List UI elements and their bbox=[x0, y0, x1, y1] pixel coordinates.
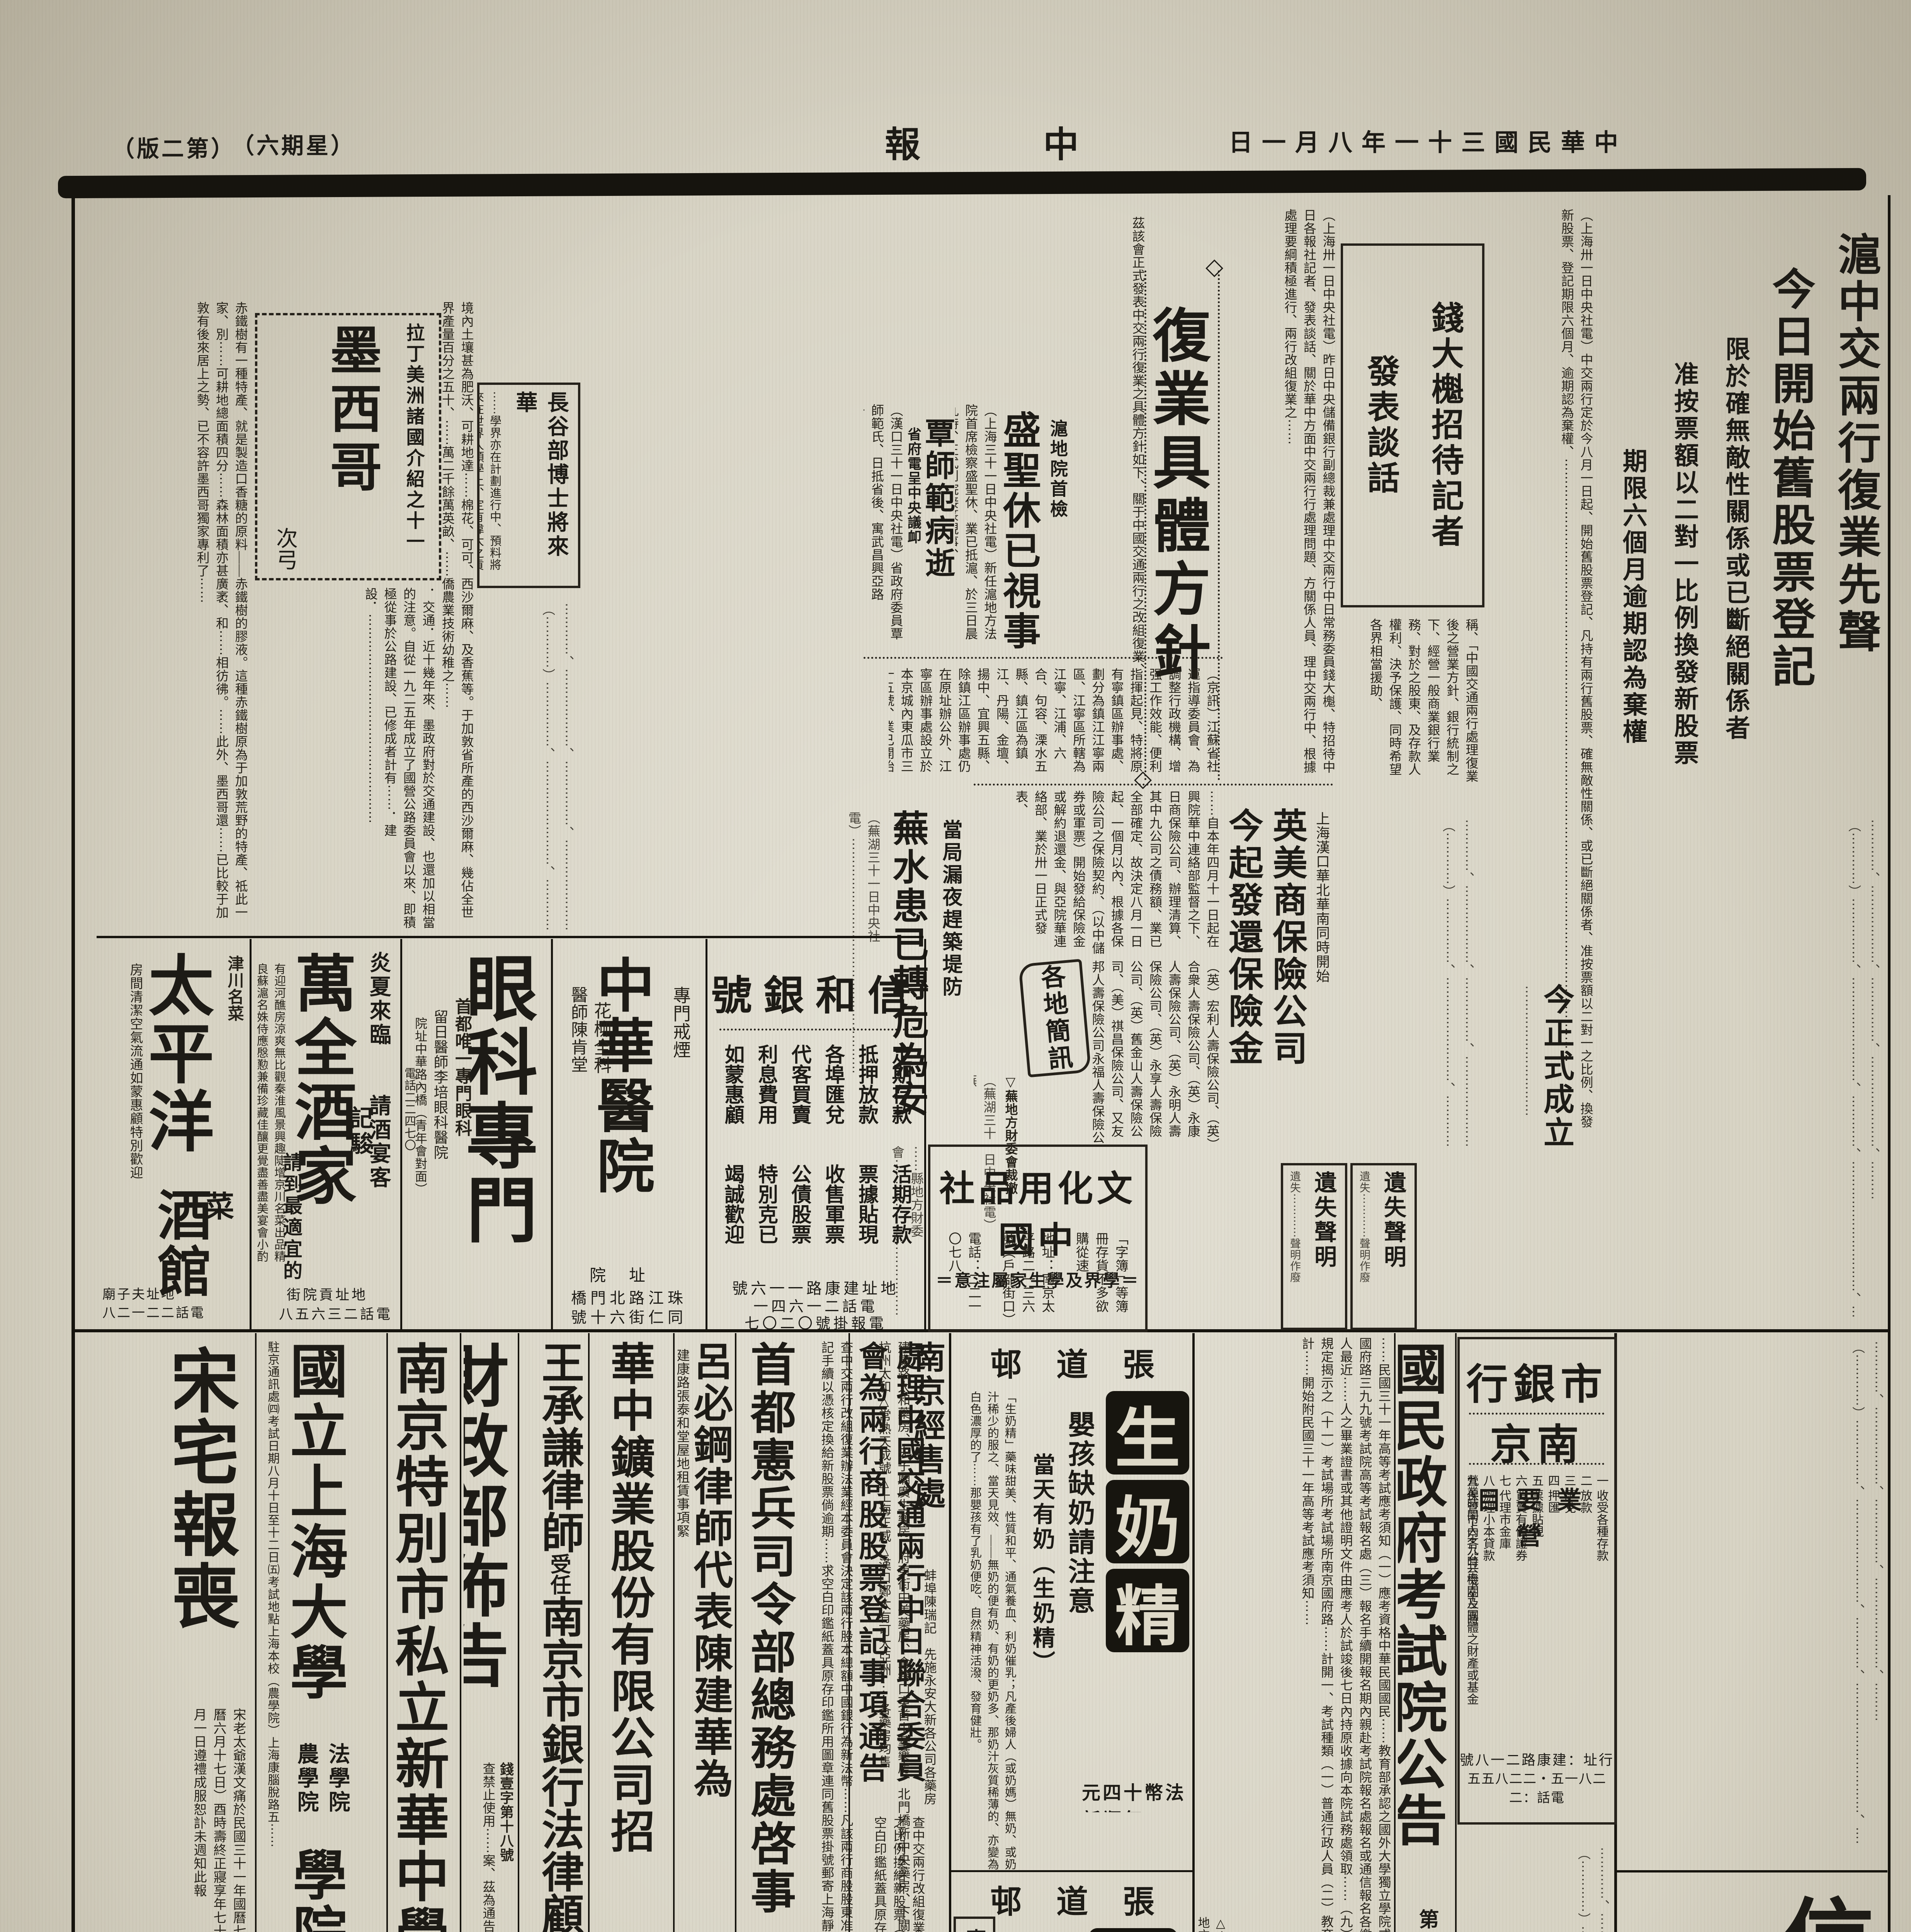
lead-subhead-1: 限於確無敵性關係或已斷絕關係者 bbox=[1711, 336, 1753, 838]
lost-notice-body-2: 遺失⋯⋯⋯⋯聲明作廢 bbox=[1286, 1171, 1302, 1322]
wenhua-line-2: 地址：南京太平路二一三六號（戶部街口） bbox=[998, 1232, 1057, 1321]
wang-t3: 法律顧問 bbox=[535, 1808, 582, 1932]
shengnai-price: 元四十幣法新瓶每 bbox=[1082, 1777, 1190, 1812]
univ-title-2: 學院招收新生 bbox=[288, 1847, 354, 1932]
zhhosp-spec-1: 專門戒煙 bbox=[667, 986, 694, 1141]
caizheng-body: 查禁止使用⋯⋯案、茲為通告週知、此佈。各區域、並應一律禁止攜帶舊幣、俟⋯⋯中華民… bbox=[464, 1762, 497, 1932]
masthead-date: 日一月八年一十三國民華中 bbox=[1229, 123, 1673, 165]
hasebe-title: 長谷部博士將來華 bbox=[509, 391, 572, 580]
bank-items: 一 收受各種存款二 放款三 匯兌四 押匯五 票據貼現六 買賣有價證券七 代理市金… bbox=[1464, 1475, 1610, 1737]
wq-kicker-1: 炎夏來臨 bbox=[363, 951, 394, 1079]
mexico-byline: 次弓 bbox=[270, 527, 301, 570]
wq-side: 記駿 bbox=[343, 1106, 376, 1175]
list-item: 四 押匯 bbox=[1545, 1475, 1560, 1733]
list-item: 定期存款 bbox=[885, 1044, 914, 1145]
tpy-side: 津川名菜 bbox=[222, 955, 246, 1110]
filler-left-mid: ⋯⋯⋯⋯、⋯⋯⋯⋯⋯⋯、⋯⋯⋯⋯⋯、⋯⋯⋯⋯⋯⋯⋯、⋯⋯⋯（⋯⋯⋯⋯）⋯⋯⋯⋯⋯… bbox=[477, 603, 576, 931]
lead-headline-line1: 滬中交兩行復業先聲 bbox=[1823, 232, 1887, 707]
fuye-diamond-top: ◇ bbox=[1205, 253, 1236, 284]
xintai-title: 信泰錢莊 bbox=[1785, 1893, 1885, 1932]
list-item: 收售軍票 bbox=[818, 1164, 847, 1264]
filler-mid-right: ⋯⋯⋯⋯、⋯⋯⋯⋯⋯⋯、⋯⋯⋯⋯⋯、⋯⋯⋯⋯⋯⋯⋯、⋯⋯⋯（⋯⋯⋯⋯）⋯⋯⋯⋯⋯… bbox=[1348, 819, 1476, 1148]
lv-title-1: 呂必鋼律師代表陳建華為 bbox=[688, 1341, 738, 1920]
edition-label: （版二第） bbox=[112, 131, 251, 169]
hasebe-box: 長谷部博士將來華 ⋯⋯學界亦在計劃進行中、預料將來在世界人類學上、定有偉大之貢獻… bbox=[477, 383, 580, 588]
wang-t2: 南京市銀行 bbox=[535, 1595, 582, 1808]
lead-subhead-2: 准按票額以二對一比例換發新股票 bbox=[1659, 361, 1702, 864]
bot-sep-l bbox=[1455, 1333, 1457, 1932]
nanjing-bank-ad: 行銀市京南 目要業營 一 收受各種存款二 放款三 匯兌四 押匯五 票據貼現六 買… bbox=[1457, 1337, 1617, 1825]
qian-interview-box: 錢大櫆招待記者 發表談話 bbox=[1341, 243, 1484, 607]
taipingyang-ad: 津川名菜 太平洋 酒館 菜 房間清潔空氣流通如蒙惠顧特別歡迎 廟子夫址地 八二一… bbox=[99, 940, 249, 1329]
zhonghua-hospital-ad: 專門戒煙 中華醫院 花柳全科 醫師陳肯堂 院址 橋門北路江珠 號十六街仁同 bbox=[553, 940, 705, 1329]
xinhe-services-row2: 活期存款票據貼現收售軍票公債股票特別克已竭誠歡迎 bbox=[716, 1164, 916, 1272]
xinhe-title: 號銀和信 bbox=[708, 963, 923, 1022]
tan-body: （漢口三十一日中央社電）省政府委員覃師範氏、日抵省後、寓武昌興亞路一⋯⋯⋯⋯ bbox=[864, 404, 904, 651]
gedi-cartouche: 各地簡訊 bbox=[1018, 959, 1092, 1077]
divider-dotted-1 bbox=[864, 657, 1223, 659]
insurance-company-list: （英）宏利人壽保險公司、（英）合衆人壽保險公司、（英）永康人壽保險公司、（英）永… bbox=[1086, 960, 1221, 1150]
wenhua-line-3: 電話：二二一〇七八 bbox=[944, 1232, 983, 1321]
tpy-tel: 八二一二二話電 bbox=[102, 1302, 205, 1321]
list-item: 三 匯兌 bbox=[1562, 1475, 1576, 1733]
ads-band-rule bbox=[97, 936, 923, 938]
list-item: 如蒙惠顧 bbox=[718, 1044, 747, 1145]
shengnai-char-1: 生 bbox=[1106, 1391, 1189, 1475]
list-item: 六 買賣有價證券 bbox=[1513, 1475, 1527, 1733]
xinhe-ad: 號銀和信 定期存款抵押放款各埠匯兌代客買賣利息費用如蒙惠顧 活期存款票據貼現收售… bbox=[708, 940, 923, 1329]
ads-sep-3 bbox=[551, 939, 553, 1329]
filler-below-bank: ⋯⋯⋯⋯、⋯⋯⋯⋯⋯⋯、⋯⋯⋯⋯⋯、⋯⋯⋯⋯⋯⋯⋯、⋯⋯⋯（⋯⋯⋯⋯）⋯⋯⋯⋯⋯… bbox=[1460, 1847, 1611, 1932]
bot-sep-k bbox=[1394, 1333, 1396, 1932]
caizheng-title: 財政部佈告 bbox=[464, 1341, 518, 1747]
mexico-title: 墨西哥 bbox=[313, 323, 388, 570]
ads-sep-1 bbox=[250, 939, 252, 1329]
chuli-body: 查中交兩行改組復業辦法業經本委員會決定該兩行股本總額中國銀行為新法幣⋯⋯凡該兩行… bbox=[808, 1341, 855, 1932]
bank-phones: 五五八二二・五一八二二：話電 bbox=[1460, 1768, 1614, 1806]
zhhosp-addr-2: 號十六街仁同 bbox=[553, 1305, 705, 1327]
univ-pair-law: 法學院 bbox=[322, 1743, 352, 1835]
tan-title: 覃師範病逝 bbox=[924, 417, 959, 618]
list-item: 活期存款 bbox=[885, 1164, 914, 1264]
wang-s: 受任 bbox=[547, 1553, 570, 1595]
caizheng-no: 錢壹字第十八號 bbox=[498, 1762, 516, 1932]
dist-extra: 蚌埠陳瑞記 先施永安大新各公司各藥房 bbox=[915, 1569, 938, 1932]
lost-notice-body: 遺失⋯⋯⋯⋯聲明作廢 bbox=[1356, 1171, 1372, 1322]
list-item: 特別克已 bbox=[751, 1164, 780, 1264]
mexico-body-1: 境內土壤甚為肥沃、可耕地達⋯⋯棉花、可可、西沙爾麻、及香蕉等。于加敦省所產的西沙… bbox=[439, 301, 475, 927]
qutan-char-1: 去 bbox=[1089, 1928, 1177, 1932]
paper-title-char-left: 報 bbox=[885, 116, 931, 166]
wushui-kicker: 當局漏夜趕築堤防 bbox=[937, 819, 965, 1059]
sheng-title: 盛聖休已視事 bbox=[1000, 410, 1046, 681]
wang-t1: 王承謙律師 bbox=[535, 1341, 582, 1553]
huazhong-title-1: 華中鑛業股份有限公司招 bbox=[603, 1341, 661, 1920]
filler-xintai-top: ⋯⋯⋯⋯、⋯⋯⋯⋯⋯⋯、⋯⋯⋯⋯⋯、⋯⋯⋯⋯⋯⋯⋯、⋯⋯⋯（⋯⋯⋯⋯）⋯⋯⋯⋯⋯… bbox=[1623, 1341, 1885, 1843]
song-title: 宋宅報喪 bbox=[175, 1345, 248, 1692]
qutan-brand: 邨道張 bbox=[989, 1876, 1190, 1918]
bot-sep-b bbox=[386, 1333, 388, 1932]
list-item: 各埠匯兌 bbox=[818, 1044, 847, 1145]
list-item: 五 票據貼現 bbox=[1529, 1475, 1544, 1733]
qian-body: （上海卅一日中央社電）昨日中央儲備銀行副總裁兼處理中交兩行中日常務委員錢大櫆、特… bbox=[1231, 209, 1337, 784]
jiangning-body: （京訊）江蘇省社運指導委員會、為調整行政機構、增强工作效能、便利指揮起見、特將原… bbox=[889, 668, 1221, 784]
shengnai-char-3: 精 bbox=[1106, 1569, 1189, 1652]
list-item: 竭誠歡迎 bbox=[718, 1164, 747, 1264]
wenhua-ad: 社品用化文國中 ＝意注屬家生學及界學＝ 「字簿」等簿冊存貨不多欲購從速 地址：南… bbox=[928, 1145, 1148, 1332]
wq-body: 有迎河醮房涼爽無比觀秦淮風景興趣陡增京川名菜出品精良蘇滬名姝侍應慇懃兼備珍藏佳釀… bbox=[253, 963, 287, 1272]
list-item: 代客買賣 bbox=[785, 1044, 814, 1145]
list-item: 八 辦理小本貸款 bbox=[1481, 1475, 1495, 1733]
list-item: 一 收受各種存款 bbox=[1594, 1475, 1608, 1733]
qian-body-2: 稱、「中國交通兩行處理復業後之營業方針、銀行統制之下、經營一般商業銀行業務、對於… bbox=[1341, 618, 1480, 784]
shengnai-char-2: 奶 bbox=[1106, 1480, 1189, 1563]
xintai-top-rule bbox=[1617, 1870, 1887, 1872]
eye-line1: 首都唯一專門眼科 bbox=[449, 998, 474, 1268]
list-item: 利息費用 bbox=[751, 1044, 780, 1145]
xinhua-title: 南京特別市私立新華中學招生 bbox=[394, 1341, 456, 1932]
frame-right bbox=[1888, 195, 1891, 1932]
list-item: 二 放款 bbox=[1578, 1475, 1592, 1733]
kaoshi-title: 國民政府考試院公告 bbox=[1398, 1341, 1454, 1889]
zhhosp-addr-label: 院址 bbox=[553, 1262, 705, 1286]
univ-pair: 法學院 農學院 bbox=[291, 1743, 352, 1835]
wang-announcement: 王承謙律師受任南京市銀行法律顧問 bbox=[522, 1341, 587, 1932]
qutan-zhuanzhi-label: 專治 bbox=[956, 1919, 993, 1932]
list-item: 七 代理市金庫 bbox=[1497, 1475, 1511, 1733]
chengli-body: ⋯⋯⋯⋯⋯⋯⋯⋯⋯⋯ bbox=[1509, 985, 1536, 1206]
list-item: 票據貼現 bbox=[852, 1164, 881, 1264]
shengnai-kicker-2: 當天有奶（生奶精） bbox=[1023, 1453, 1058, 1801]
ads-sep-2 bbox=[400, 939, 402, 1329]
ads-sep-4 bbox=[706, 939, 707, 1329]
lead-subhead-3: 期限六個月逾期認為棄權 bbox=[1608, 448, 1651, 827]
ads-sep-5 bbox=[924, 939, 926, 1329]
eye-line4: 電話二二四七〇 bbox=[403, 1067, 418, 1299]
lost-notice-title: 遺失聲明 bbox=[1377, 1171, 1409, 1322]
tpy-title-3: 菜 bbox=[195, 1191, 238, 1237]
tan-kicker: 省府電呈中央議卹 bbox=[906, 427, 923, 601]
song-body: 宋老太爺漢文痛於民國三十一年國曆七月廿九日（農曆六月十七日）酉時壽終正寢享年七十… bbox=[171, 1708, 248, 1932]
shengnai-body: 「生奶精」藥味甜美、性質和平、通氣養血、利奶催乳；凡產後婦人（或奶媽）無奶、或奶… bbox=[954, 1391, 1018, 1874]
wq-addr: 街院貢址地 bbox=[287, 1284, 368, 1304]
bot-sep-d bbox=[518, 1333, 519, 1932]
mexico-box: 拉丁美洲諸國介紹之十一 墨西哥 次弓 bbox=[255, 313, 441, 580]
insurance-title-1: 英美商保險公司 bbox=[1268, 808, 1311, 1101]
chengli-title: 今正式成立 bbox=[1540, 983, 1578, 1207]
sheng-body: （上海三十一日中央社電）新任滬地方法院首席檢察盛聖休、業已抵滬、於三日晨九時、正… bbox=[955, 404, 998, 651]
lost-notice-box-1: 遺失聲明 遺失⋯⋯⋯⋯聲明作廢 bbox=[1350, 1163, 1417, 1330]
wanquan-ad: 炎夏來臨 請酒宴客 萬全酒家 記駿 請到最適宜的 有迎河醮房涼爽無比觀秦淮風景興… bbox=[252, 940, 400, 1329]
hasebe-body: ⋯⋯學界亦在計劃進行中、預料將來在世界人類學上、定有偉大之貢獻、 bbox=[477, 391, 503, 580]
xinhe-services-row1: 定期存款抵押放款各埠匯兌代客買賣利息費用如蒙惠顧 bbox=[716, 1044, 916, 1152]
list-item: 公債股票 bbox=[785, 1164, 814, 1264]
mexico-kicker: 拉丁美洲諸國介紹之十一 bbox=[400, 323, 427, 570]
divider-dotted-2 bbox=[974, 784, 1333, 786]
paper-title-char-right: 中 bbox=[1043, 116, 1090, 166]
ads-divider-qt bbox=[951, 1870, 1192, 1872]
univ-title-1: 國立上海大學 bbox=[286, 1341, 355, 1735]
gedi-title: 各地簡訊 bbox=[1021, 962, 1088, 1075]
univ-kicker: 駐京通訊處㈣考試日期八月十日至十二日㈤考試地點上海本校（農學院）上海康腦脫路五⋯… bbox=[260, 1341, 281, 1932]
wq-tel: 八五六三二話電 bbox=[279, 1303, 393, 1323]
bank-title: 行銀市京南 bbox=[1460, 1351, 1614, 1471]
qutan-bigchars: 去 痰 精 bbox=[1089, 1928, 1182, 1932]
masthead-rule bbox=[58, 168, 1866, 198]
xianbing-title: 首都憲兵司令部總務處啓事 bbox=[744, 1341, 802, 1932]
kaoshi-body: ⋯⋯民國三十一年高等考試應考須知（一）應考資格中華民國國民⋯⋯教育部承認之國外大… bbox=[1196, 1337, 1392, 1932]
dist-title: 南京經售處 bbox=[915, 1341, 950, 1557]
insurance-body: ⋯⋯自本年四月十一日起在興院華中連絡部監督之下、日商保險公司、辦理清算、其中九公… bbox=[974, 790, 1221, 956]
bot-sep-a bbox=[255, 1333, 257, 1932]
bot-sep-c bbox=[460, 1333, 461, 1932]
lost-notice-box-2: 遺失聲明 遺失⋯⋯⋯⋯聲明作廢 bbox=[1281, 1163, 1347, 1330]
bank-address: 號八一二路康建：址行 bbox=[1460, 1749, 1614, 1769]
list-item: 抵押放款 bbox=[852, 1044, 881, 1145]
kaoshi-no: 第七號 bbox=[1414, 1909, 1441, 1932]
lv-mid: 建康路張泰和堂屋地租賃事項緊 bbox=[675, 1349, 692, 1812]
mexico-body-2: 赤鐵樹有一種特產、就是製造口香糖的原料——赤鐵樹的膠液。這種赤鐵樹原為于加敦荒野… bbox=[99, 301, 249, 931]
filler-right-margin: ⋯⋯⋯⋯、⋯⋯⋯⋯⋯⋯、⋯⋯⋯⋯⋯、⋯⋯⋯⋯⋯⋯⋯、⋯⋯⋯（⋯⋯⋯⋯）⋯⋯⋯⋯⋯… bbox=[1766, 819, 1882, 1318]
zhhosp-doctor: 醫師陳肯堂 bbox=[565, 986, 590, 1148]
tpy-addr: 廟子夫址地 bbox=[102, 1284, 176, 1303]
qian-title-2: 發表談話 bbox=[1357, 354, 1404, 497]
wenhua-line-1: 「字簿」等簿冊存貨不多欲購從速 bbox=[1071, 1232, 1130, 1321]
frame-left bbox=[71, 195, 75, 1932]
lost-notice-title-2: 遺失聲明 bbox=[1307, 1171, 1340, 1322]
sheng-kicker: 滬地院首檢 bbox=[1046, 419, 1070, 554]
tpy-side-2: 房間清潔空氣流通如蒙惠顧特別歡迎 bbox=[122, 963, 145, 1280]
shengnai-kicker-1: 嬰孩缺奶請注意 bbox=[1062, 1410, 1098, 1704]
lead-headline-line2: 今日開始舊股票登記 bbox=[1757, 267, 1821, 753]
univ-pair-agri: 農學院 bbox=[291, 1743, 322, 1835]
dist-body: 建康路太和藥房、夫子廟廣生藥房、府東街中美藥房、倉巷口東首中華藥房、北門橋新中央… bbox=[854, 1341, 912, 1932]
shengnai-brand: 邨道張 bbox=[989, 1339, 1190, 1381]
zhhosp-spec-2: 花柳全科 bbox=[588, 1002, 615, 1156]
bank-hours: 營業時間上午九時至下午三時 bbox=[1463, 1475, 1480, 1737]
insurance-title-2: 今起發還保險金 bbox=[1224, 808, 1267, 1101]
insurance-kicker: 上海漢口華北華南同時開始 bbox=[1313, 811, 1332, 1082]
newspaper-page: 日一月八年一十三國民華中 中 報 （六期星） （版二第） 滬中交兩行復業先聲 今… bbox=[0, 0, 1911, 1932]
bot-sep-e bbox=[588, 1333, 590, 1932]
mexico-body-3: ．交通．近十幾年來、墨政府對於交通建設、也還加以相當的注意。自從一九二五年成立了… bbox=[255, 587, 437, 931]
qutan-zhuanzhi-box: 專治 熱痰風痰驚痰白痰黃痰痰核瘰癧 bbox=[954, 1917, 995, 1932]
weekday-label: （六期星） bbox=[232, 128, 371, 166]
qian-title-1: 錢大櫆招待記者 bbox=[1421, 301, 1468, 550]
eye-line2: 留日醫師李培眼科醫院 bbox=[428, 1009, 450, 1287]
xinhe-cable: 七〇二〇號掛報電 bbox=[708, 1311, 923, 1329]
eye-clinic-ad: 眼科專門 首都唯一專門眼科 留日醫師李培眼科醫院 院址中華路內橋（青年會對面） … bbox=[403, 940, 550, 1329]
